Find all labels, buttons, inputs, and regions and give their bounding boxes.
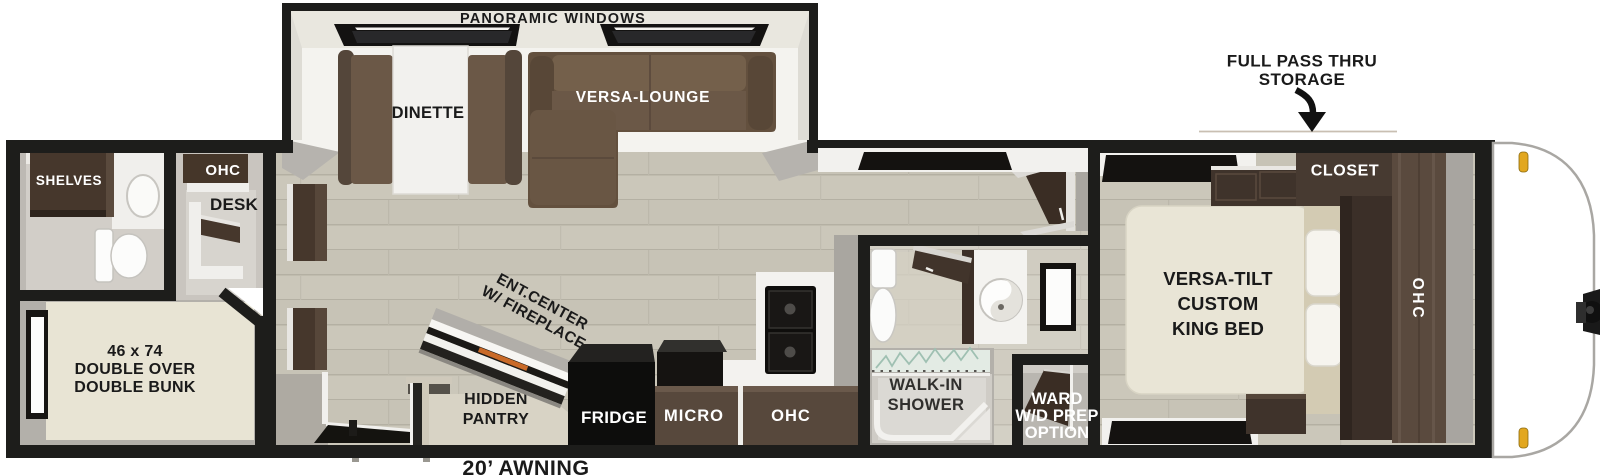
svg-text:SHOWER: SHOWER — [888, 396, 965, 414]
svg-text:VERSA-LOUNGE: VERSA-LOUNGE — [576, 89, 710, 106]
svg-text:CLOSET: CLOSET — [1311, 163, 1380, 180]
svg-text:20’ AWNING: 20’ AWNING — [462, 456, 589, 476]
svg-text:DOUBLE OVER: DOUBLE OVER — [75, 361, 196, 378]
svg-text:FULL PASS THRU: FULL PASS THRU — [1227, 52, 1377, 71]
svg-text:VERSA-TILT: VERSA-TILT — [1163, 268, 1273, 289]
svg-text:OHC: OHC — [1409, 278, 1426, 321]
svg-text:MICRO: MICRO — [664, 407, 724, 425]
svg-text:OPTION: OPTION — [1025, 424, 1089, 442]
svg-text:PANTRY: PANTRY — [463, 411, 529, 428]
svg-text:DESK: DESK — [210, 195, 259, 214]
svg-text:FRIDGE: FRIDGE — [581, 408, 647, 427]
svg-text:STORAGE: STORAGE — [1259, 70, 1346, 89]
svg-text:KING BED: KING BED — [1172, 318, 1264, 339]
svg-text:PANORAMIC WINDOWS: PANORAMIC WINDOWS — [460, 11, 646, 27]
svg-text:DINETTE: DINETTE — [392, 104, 465, 122]
svg-text:W/D PREP: W/D PREP — [1015, 407, 1098, 425]
svg-text:DOUBLE BUNK: DOUBLE BUNK — [74, 379, 196, 396]
svg-text:OHC: OHC — [205, 162, 240, 179]
svg-text:CUSTOM: CUSTOM — [1177, 293, 1258, 314]
svg-text:OHC: OHC — [771, 407, 811, 425]
svg-text:WARD: WARD — [1031, 390, 1082, 408]
svg-text:46 x 74: 46 x 74 — [107, 343, 162, 360]
svg-text:HIDDEN: HIDDEN — [464, 391, 528, 408]
svg-text:SHELVES: SHELVES — [36, 173, 102, 188]
svg-text:WALK-IN: WALK-IN — [889, 376, 962, 394]
